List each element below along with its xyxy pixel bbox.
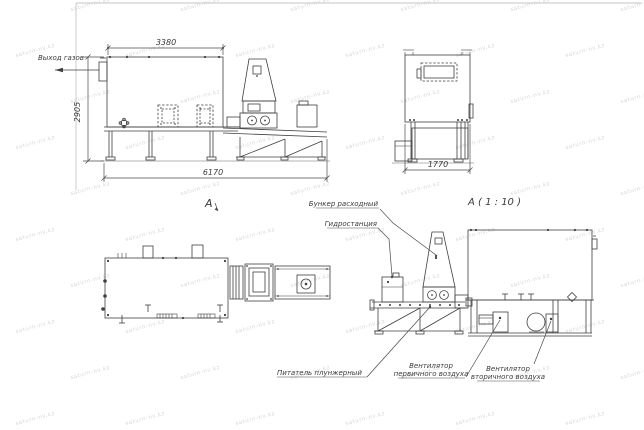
- valve-fitting: [119, 118, 129, 128]
- hatch-box-1: [158, 105, 178, 127]
- hopper-tower-side: [240, 59, 277, 128]
- feeder-plan: [230, 264, 330, 301]
- secondary-fan-callout-line1: Вентилятор: [486, 365, 530, 373]
- view-a-mark: А: [204, 197, 213, 210]
- dim-3380: 3380: [156, 38, 176, 47]
- grille-strips: [157, 314, 215, 318]
- conveyor-end-box: [297, 101, 317, 127]
- text-layer: Выход газов 3380 2905 6170 1770 А А ( 1 …: [38, 38, 545, 381]
- primary-fan-callout-line2: первичного воздуха: [394, 370, 469, 378]
- hopper-callout: Бункер расходный: [309, 200, 379, 208]
- primary-fan-callout-line1: Вентилятор: [409, 362, 453, 370]
- plan-view: [101, 245, 330, 323]
- gas-flow-arrow: [55, 68, 99, 72]
- dim-2905: 2905: [73, 102, 82, 122]
- dim-1770: 1770: [428, 160, 448, 169]
- secondary-fan-callout-line2: вторичного воздуха: [471, 373, 545, 381]
- hopper-detail: [423, 232, 455, 287]
- primary-air-fan: [479, 312, 508, 332]
- end-view: [392, 50, 474, 163]
- hydrostation-callout: Гидростанция: [325, 220, 377, 228]
- detail-a-title: А ( 1 : 10 ): [467, 197, 521, 208]
- conveyor-truss-side: [236, 137, 326, 160]
- plunger-feeder-callout: Питатель плунжерный: [277, 369, 362, 377]
- drawing-canvas: Выход газов 3380 2905 6170 1770 А А ( 1 …: [0, 0, 644, 430]
- detail-view: [370, 229, 597, 336]
- sheet-frame: [76, 3, 642, 190]
- gas-outlet-stub: [99, 58, 107, 81]
- gas-outlet-label: Выход газов: [38, 54, 84, 62]
- inspection-opening: [417, 63, 457, 81]
- dim-6170: 6170: [203, 168, 223, 177]
- feeder-truss: [374, 308, 463, 334]
- hatch-box-2: [197, 105, 213, 127]
- view-a-arrow: [215, 203, 218, 211]
- drawing-sheet: saturn-nv.kzsaturn-nv.kzsaturn-nv.kzsatu…: [0, 0, 644, 430]
- main-side-view: [55, 56, 330, 161]
